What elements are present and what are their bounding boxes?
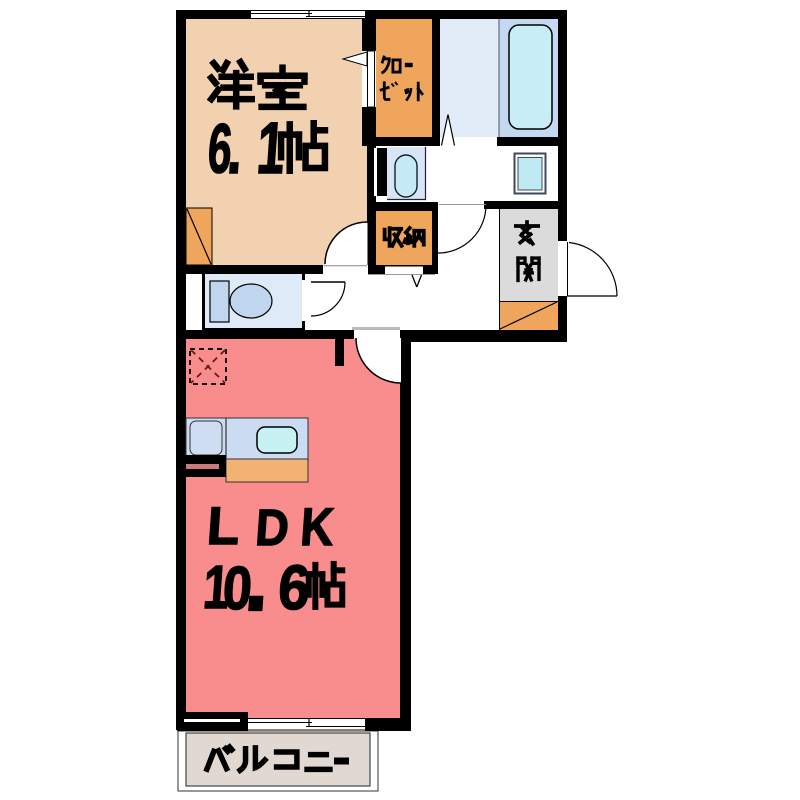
svg-text:K: K bbox=[299, 498, 336, 557]
svg-text:L: L bbox=[205, 497, 241, 556]
